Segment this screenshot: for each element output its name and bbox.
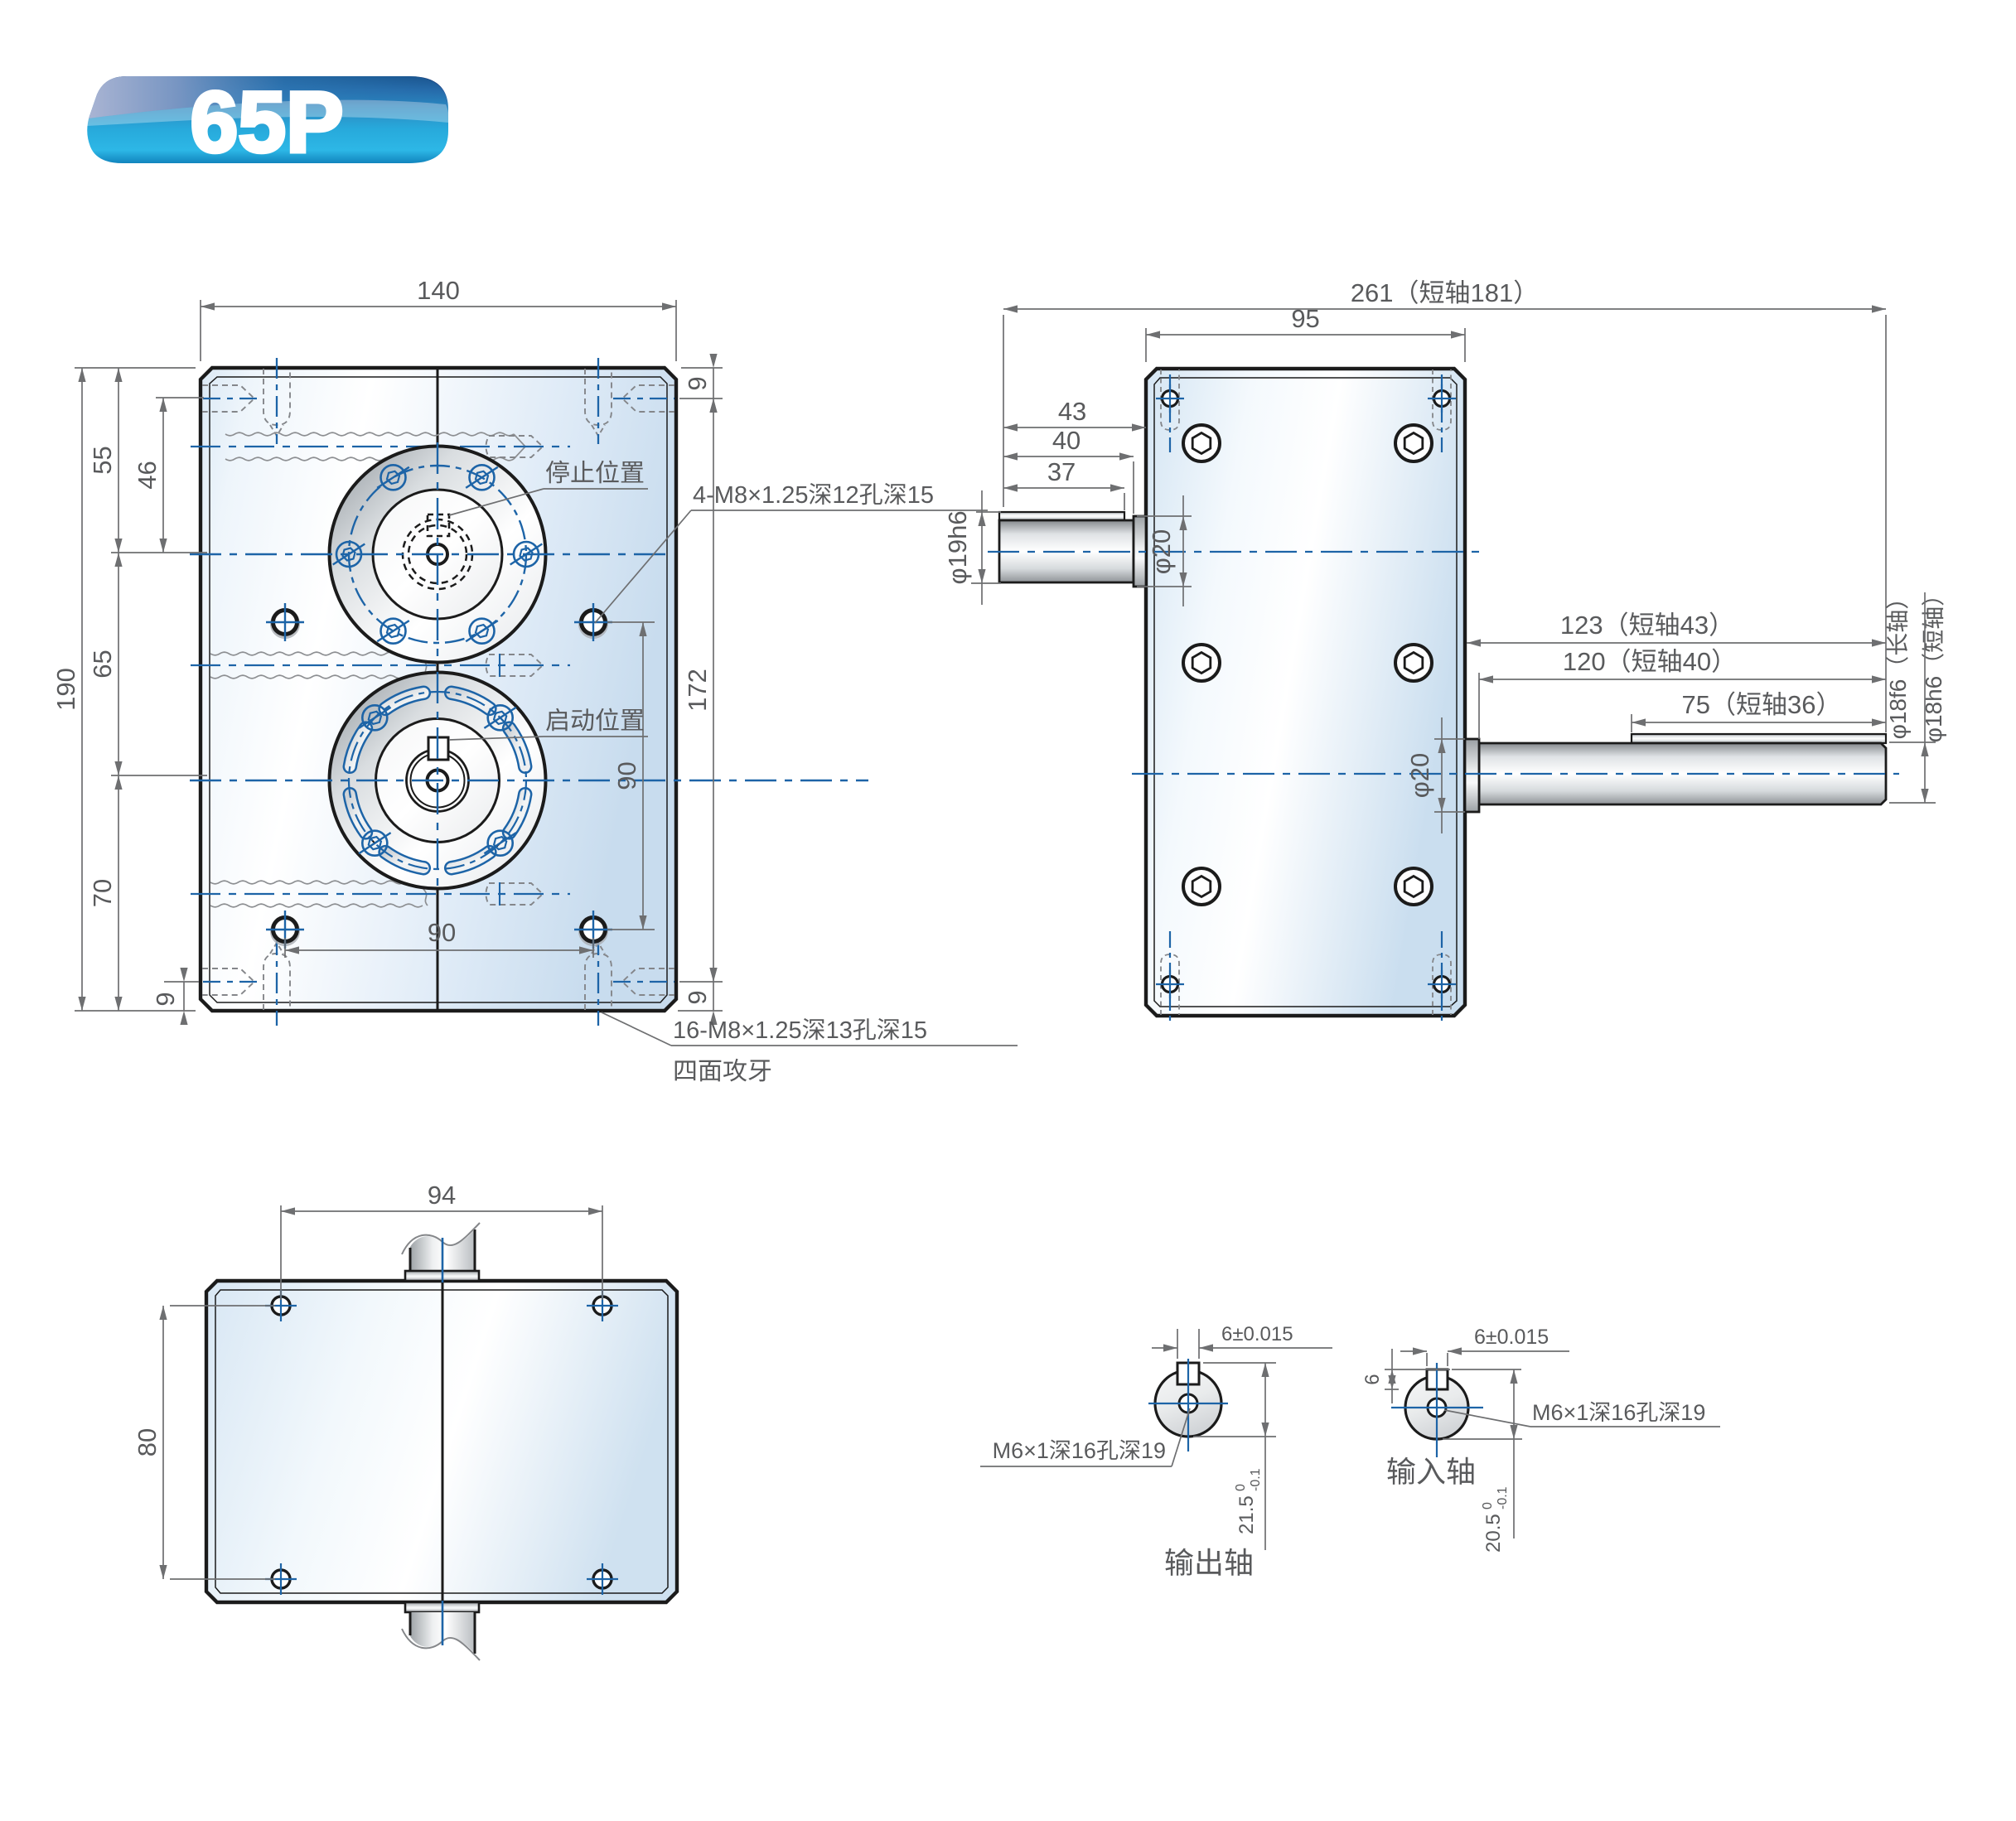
svg-text:36: 36: [1787, 690, 1815, 719]
svg-text:90: 90: [612, 761, 641, 790]
svg-text:261: 261: [1351, 278, 1394, 307]
svg-text:6±0.015: 6±0.015: [1474, 1326, 1549, 1349]
svg-text:15: 15: [901, 1017, 927, 1044]
svg-text:43: 43: [1680, 611, 1709, 640]
svg-text:6: 6: [1361, 1374, 1384, 1384]
svg-text:65P: 65P: [190, 75, 343, 171]
svg-text:120: 120: [1563, 647, 1606, 676]
svg-text:65: 65: [88, 650, 117, 678]
svg-text:16-M8×1.25: 16-M8×1.25: [673, 1017, 802, 1044]
svg-text:20.5: 20.5: [1482, 1514, 1505, 1553]
svg-text:172: 172: [683, 669, 712, 712]
svg-text:4-M8×1.25: 4-M8×1.25: [693, 482, 808, 509]
svg-text:95: 95: [1291, 304, 1319, 333]
svg-text:15: 15: [907, 482, 934, 509]
svg-text:80: 80: [133, 1428, 162, 1456]
svg-text:M6×1: M6×1: [1532, 1400, 1588, 1425]
svg-text:43: 43: [1058, 397, 1086, 426]
svg-text:9: 9: [683, 990, 712, 1004]
svg-text:φ20: φ20: [1405, 753, 1434, 799]
svg-text:40: 40: [1052, 426, 1081, 455]
svg-text:55: 55: [88, 446, 117, 474]
svg-text:123: 123: [1560, 611, 1603, 640]
svg-text:-0.1: -0.1: [1249, 1468, 1263, 1491]
svg-text:37: 37: [1047, 457, 1076, 486]
svg-text:12: 12: [832, 482, 858, 509]
svg-text:190: 190: [51, 668, 80, 711]
svg-text:181: 181: [1471, 278, 1514, 307]
svg-text:19: 19: [1141, 1438, 1166, 1463]
svg-text:16: 16: [1071, 1438, 1096, 1463]
svg-text:9: 9: [683, 376, 712, 390]
svg-text:46: 46: [133, 461, 162, 489]
svg-text:0: 0: [1234, 1484, 1248, 1491]
svg-text:0: 0: [1481, 1502, 1495, 1509]
svg-text:M6×1: M6×1: [993, 1438, 1049, 1463]
svg-text:90: 90: [428, 918, 456, 947]
svg-text:70: 70: [88, 879, 117, 907]
svg-text:9: 9: [151, 992, 180, 1006]
svg-text:19: 19: [1680, 1400, 1705, 1425]
svg-text:13: 13: [826, 1017, 853, 1044]
svg-text:φ18f6: φ18f6: [1885, 679, 1911, 740]
svg-text:16: 16: [1611, 1400, 1636, 1425]
svg-text:-0.1: -0.1: [1496, 1486, 1510, 1509]
svg-text:φ19h6: φ19h6: [943, 510, 972, 584]
svg-text:6±0.015: 6±0.015: [1221, 1323, 1293, 1345]
svg-text:21.5: 21.5: [1235, 1495, 1258, 1534]
svg-text:140: 140: [417, 276, 460, 305]
svg-text:40: 40: [1683, 647, 1711, 676]
svg-text:75: 75: [1682, 690, 1710, 719]
svg-text:φ20: φ20: [1147, 529, 1176, 575]
svg-text:94: 94: [428, 1181, 456, 1210]
